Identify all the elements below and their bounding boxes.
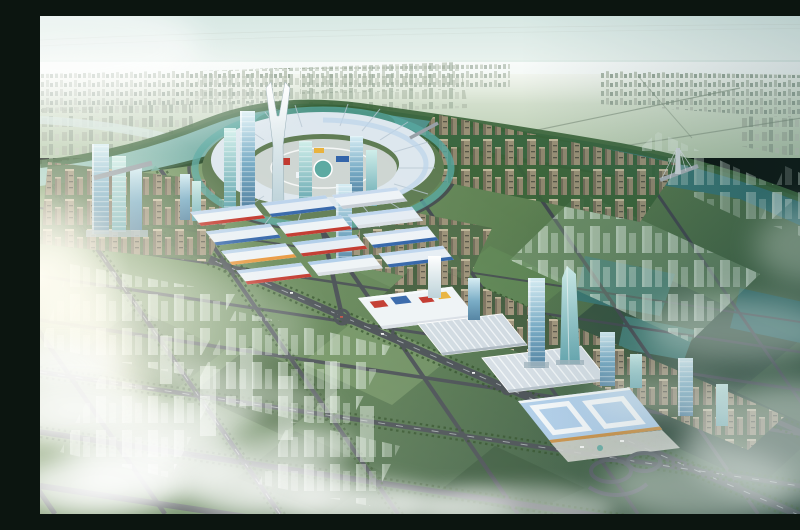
- atmosphere: [40, 16, 800, 514]
- render-canvas: [40, 16, 800, 514]
- aerial-city-rendering: [40, 16, 800, 514]
- sky-veil: [40, 16, 800, 60]
